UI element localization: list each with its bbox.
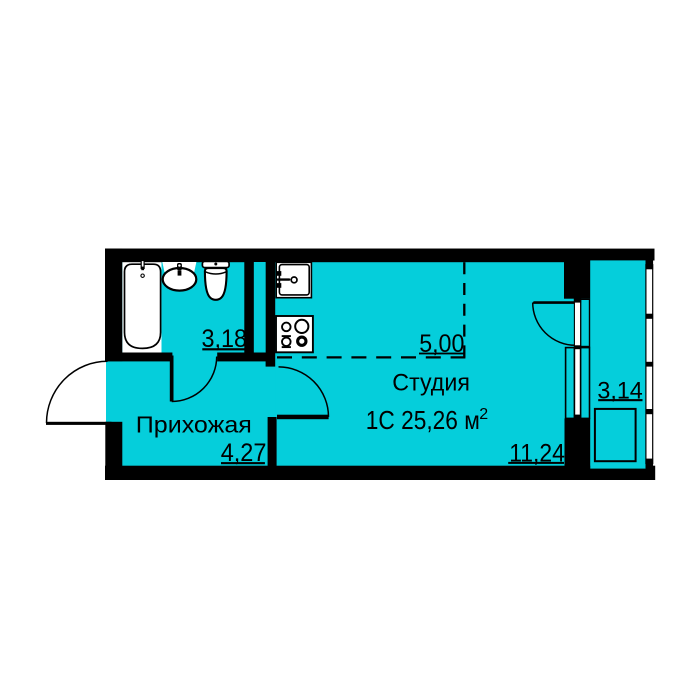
svg-text:Студия: Студия [392,370,470,397]
svg-text:2: 2 [479,406,488,423]
svg-text:1С 25,26 м: 1С 25,26 м [366,405,480,435]
svg-text:Прихожая: Прихожая [136,411,252,437]
